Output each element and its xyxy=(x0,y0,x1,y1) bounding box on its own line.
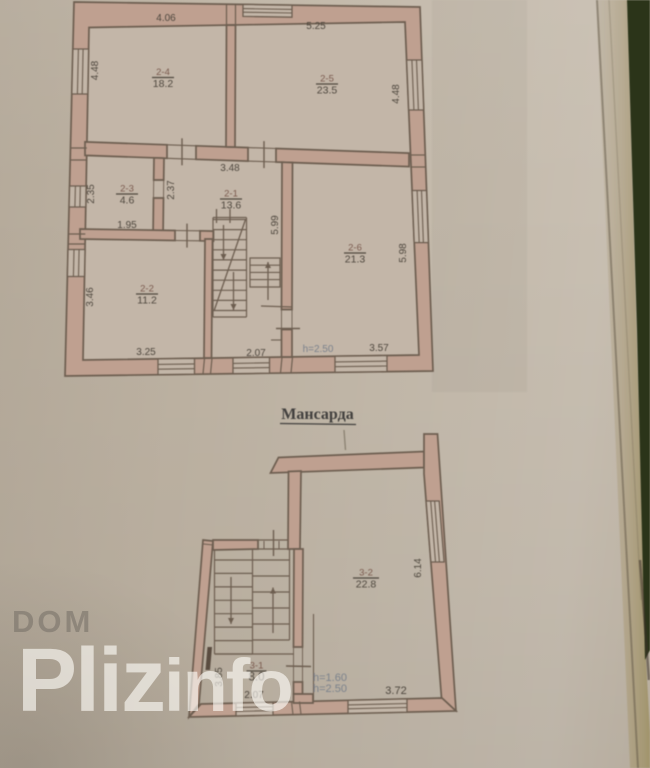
svg-text:22.8: 22.8 xyxy=(356,579,377,591)
svg-text:2-4: 2-4 xyxy=(156,67,170,78)
svg-text:13.6: 13.6 xyxy=(221,200,242,212)
svg-text:21.3: 21.3 xyxy=(345,254,366,266)
svg-text:3-2: 3-2 xyxy=(359,568,373,579)
svg-text:4.06: 4.06 xyxy=(156,13,176,24)
svg-text:2.07: 2.07 xyxy=(246,348,266,359)
svg-text:5.98: 5.98 xyxy=(398,243,409,263)
svg-text:1.95: 1.95 xyxy=(117,220,137,231)
svg-text:3.46: 3.46 xyxy=(85,287,96,307)
svg-text:4.48: 4.48 xyxy=(90,60,101,80)
svg-text:h=2.50: h=2.50 xyxy=(303,344,334,355)
svg-text:2-2: 2-2 xyxy=(140,284,154,295)
svg-text:h=2.50: h=2.50 xyxy=(313,683,347,695)
svg-text:2.37: 2.37 xyxy=(166,180,177,200)
svg-text:2.35: 2.35 xyxy=(86,184,97,204)
svg-text:2-1: 2-1 xyxy=(224,189,238,200)
svg-text:3.25: 3.25 xyxy=(136,347,156,358)
svg-text:11.2: 11.2 xyxy=(137,295,157,307)
svg-text:2-5: 2-5 xyxy=(320,74,334,85)
svg-text:3.72: 3.72 xyxy=(385,685,406,697)
svg-text:18.2: 18.2 xyxy=(153,78,174,90)
svg-text:3.57: 3.57 xyxy=(369,343,389,354)
svg-text:3.48: 3.48 xyxy=(220,163,240,174)
svg-text:6.14: 6.14 xyxy=(413,558,424,578)
svg-text:2-6: 2-6 xyxy=(348,243,362,254)
svg-text:5.25: 5.25 xyxy=(306,21,326,32)
svg-text:4.48: 4.48 xyxy=(391,84,402,104)
svg-text:4.6: 4.6 xyxy=(120,195,135,207)
svg-text:Мансарда: Мансарда xyxy=(281,406,353,423)
svg-text:23.5: 23.5 xyxy=(317,85,338,97)
svg-text:5.99: 5.99 xyxy=(270,215,281,235)
svg-text:2-3: 2-3 xyxy=(120,184,134,195)
